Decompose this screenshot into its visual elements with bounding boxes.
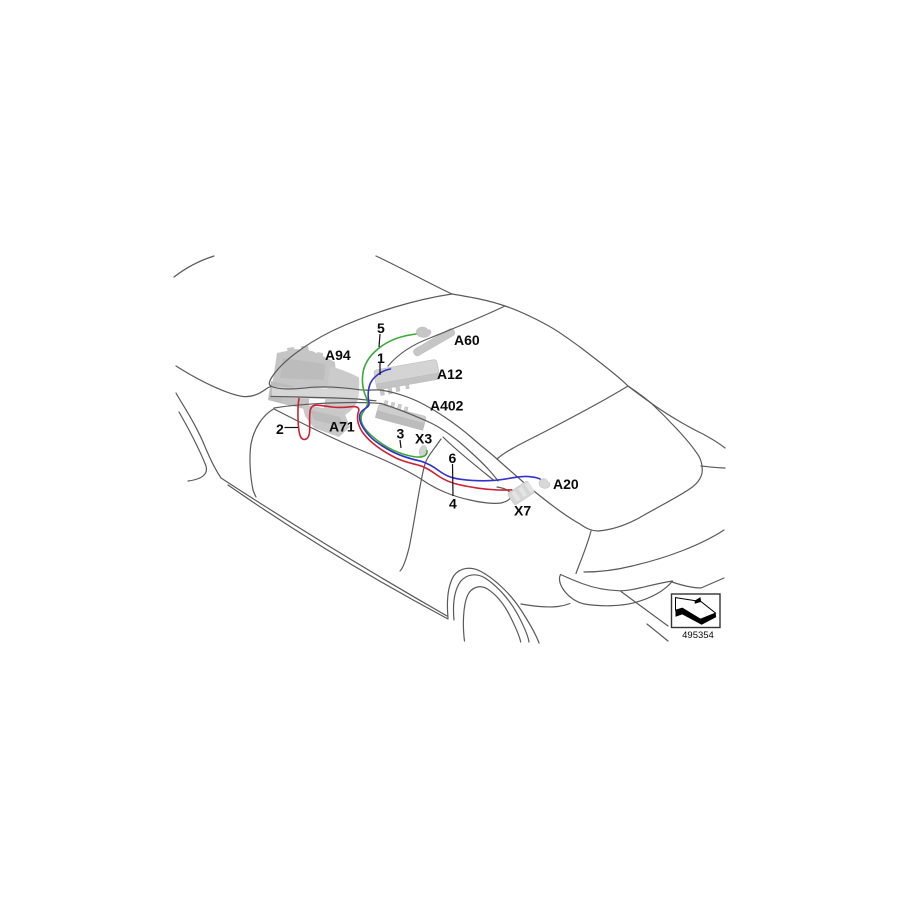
svg-text:6: 6 (449, 450, 457, 466)
svg-text:A94: A94 (325, 347, 351, 363)
svg-text:A402: A402 (430, 398, 464, 414)
svg-text:495354: 495354 (682, 630, 714, 641)
svg-text:A71: A71 (329, 419, 355, 435)
svg-text:2: 2 (276, 421, 284, 437)
svg-text:A12: A12 (437, 366, 463, 382)
svg-text:1: 1 (377, 350, 385, 366)
svg-text:4: 4 (449, 496, 457, 512)
svg-text:5: 5 (377, 320, 385, 336)
svg-text:X3: X3 (415, 431, 432, 447)
svg-text:A20: A20 (553, 476, 579, 492)
svg-text:X7: X7 (514, 503, 531, 519)
svg-text:3: 3 (397, 426, 405, 442)
svg-text:A60: A60 (454, 332, 480, 348)
